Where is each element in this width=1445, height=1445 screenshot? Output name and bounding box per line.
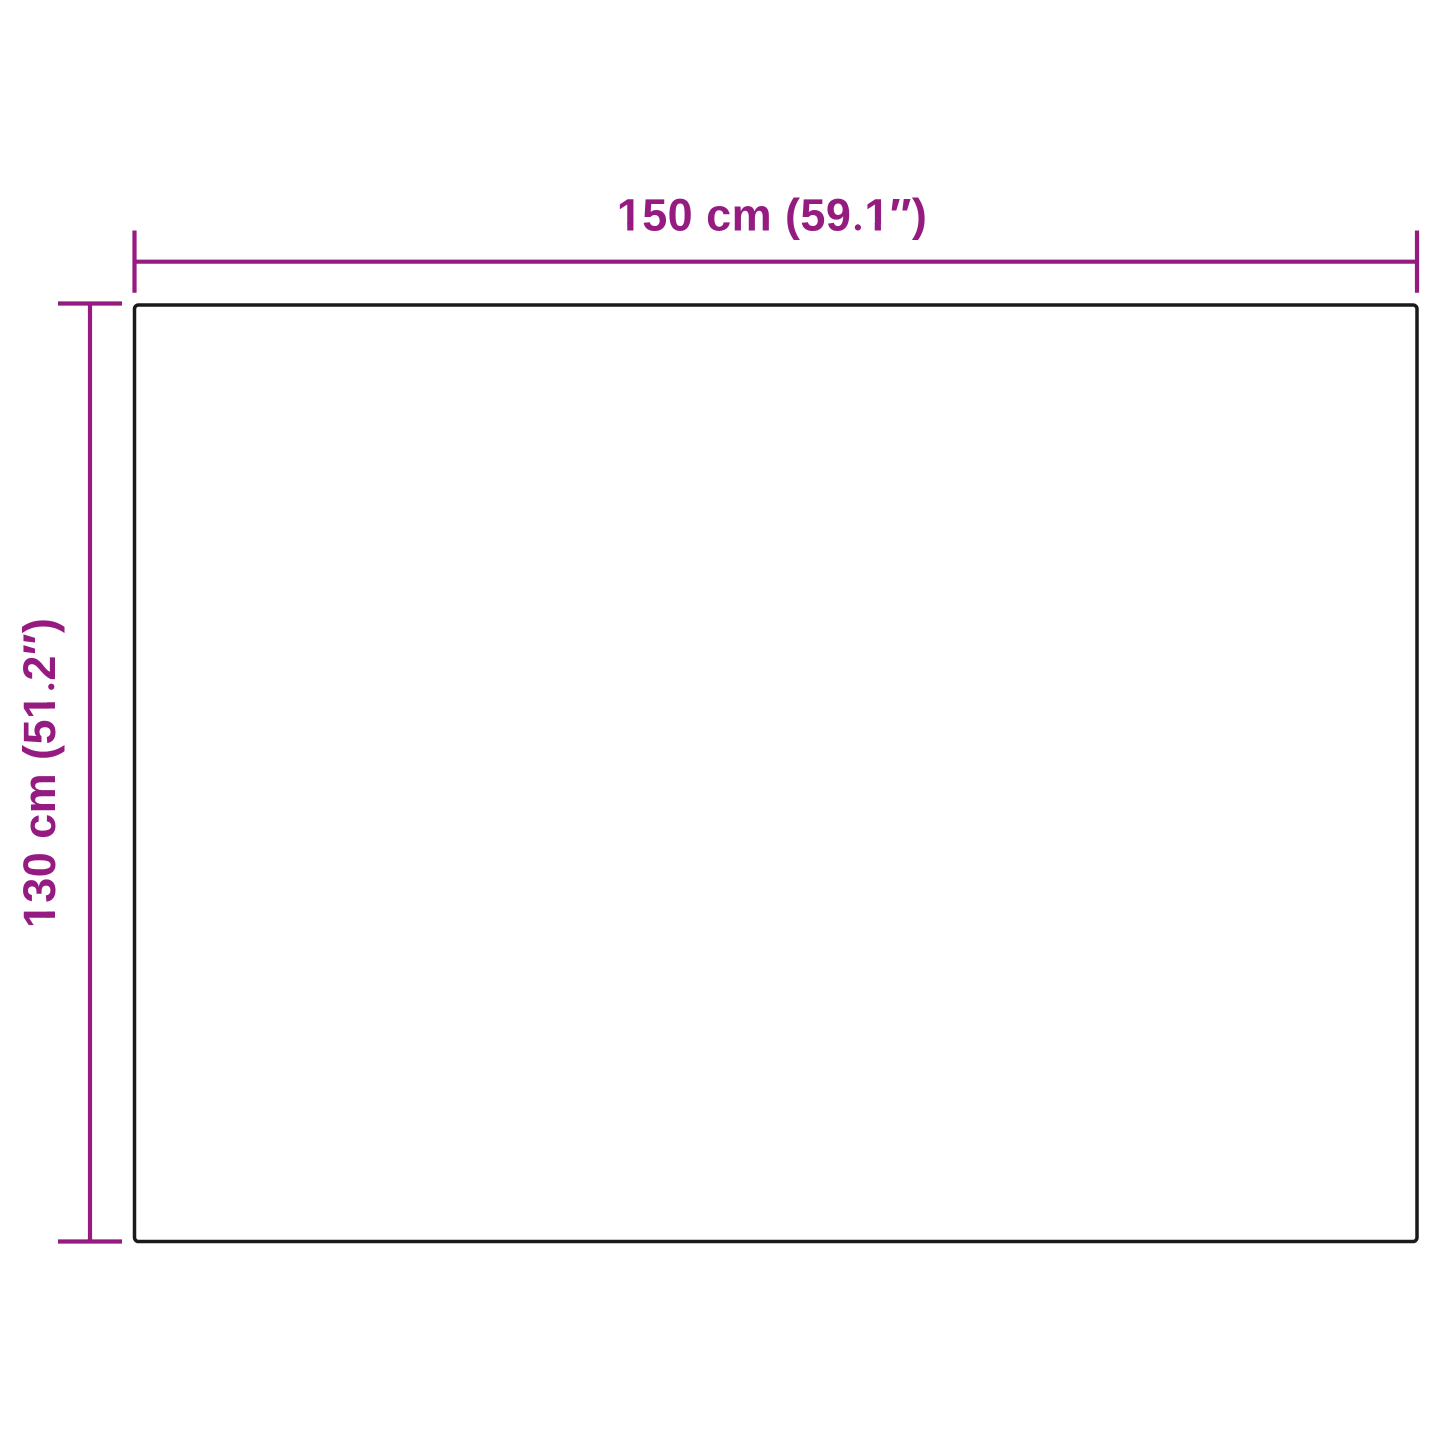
svg-text:130 cm (51.2″): 130 cm (51.2″) <box>14 618 65 929</box>
svg-text:150 cm (59.1″): 150 cm (59.1″) <box>617 190 928 241</box>
